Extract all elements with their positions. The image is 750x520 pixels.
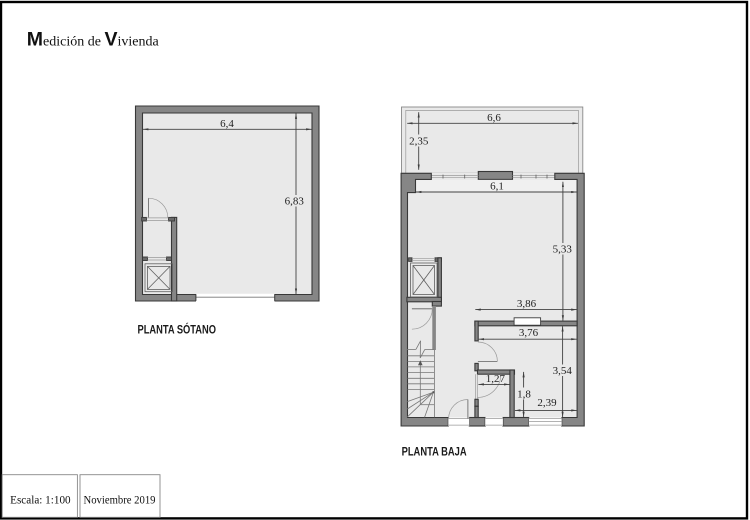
svg-text:Escala: 1:100: Escala: 1:100 — [10, 495, 71, 507]
svg-text:Medición de Vivienda: Medición de Vivienda — [27, 29, 160, 51]
svg-text:6,1: 6,1 — [490, 180, 504, 192]
svg-text:2,39: 2,39 — [537, 397, 557, 409]
svg-text:Noviembre 2019: Noviembre 2019 — [84, 495, 156, 507]
svg-text:6,4: 6,4 — [220, 118, 234, 130]
svg-text:3,76: 3,76 — [519, 327, 539, 339]
svg-text:1,8: 1,8 — [517, 388, 531, 400]
svg-text:6,83: 6,83 — [285, 196, 305, 208]
svg-text:1,27: 1,27 — [486, 373, 506, 385]
svg-text:5,33: 5,33 — [553, 244, 573, 256]
svg-text:3,86: 3,86 — [517, 298, 537, 310]
svg-text:PLANTA BAJA: PLANTA BAJA — [402, 445, 467, 459]
svg-text:2,35: 2,35 — [409, 135, 429, 147]
svg-text:3,54: 3,54 — [553, 365, 573, 377]
svg-text:6,6: 6,6 — [487, 112, 501, 124]
svg-text:PLANTA SÓTANO: PLANTA SÓTANO — [138, 322, 217, 337]
